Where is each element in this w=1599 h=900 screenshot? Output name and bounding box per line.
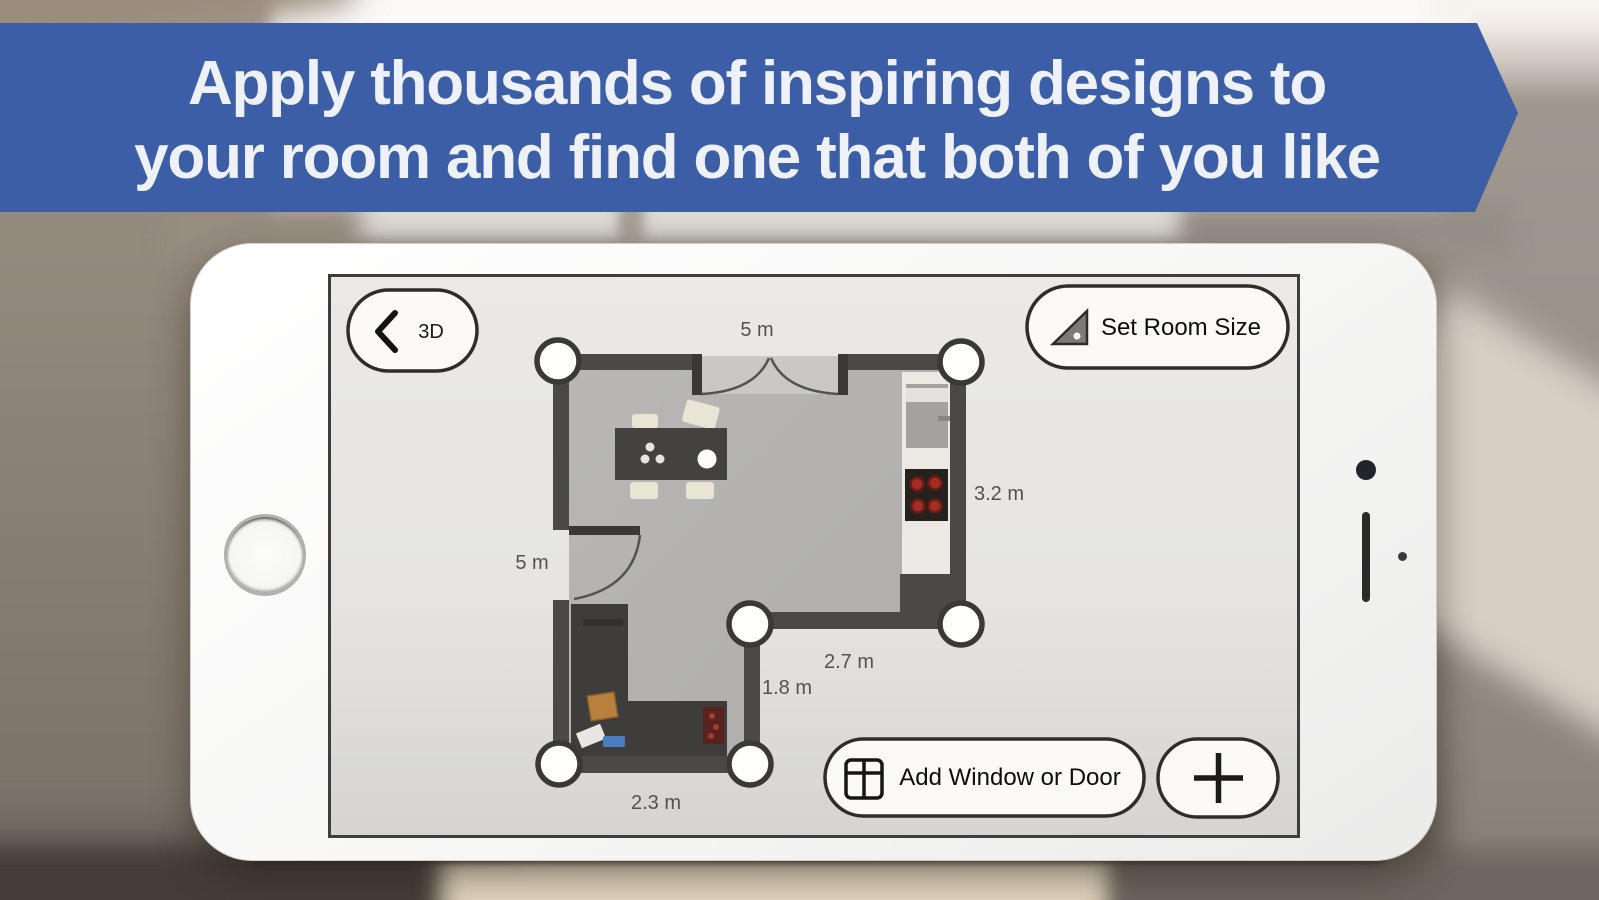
svg-text:5 m: 5 m <box>515 552 548 574</box>
svg-text:3.2 m: 3.2 m <box>974 483 1024 505</box>
svg-text:Add Window or Door: Add Window or Door <box>899 764 1120 791</box>
svg-text:Set Room Size: Set Room Size <box>1101 314 1261 341</box>
svg-text:2.7 m: 2.7 m <box>824 651 874 673</box>
svg-text:2.3 m: 2.3 m <box>631 792 681 814</box>
svg-text:3D: 3D <box>418 321 444 343</box>
svg-text:5 m: 5 m <box>740 319 773 341</box>
svg-text:1.8 m: 1.8 m <box>762 677 812 699</box>
